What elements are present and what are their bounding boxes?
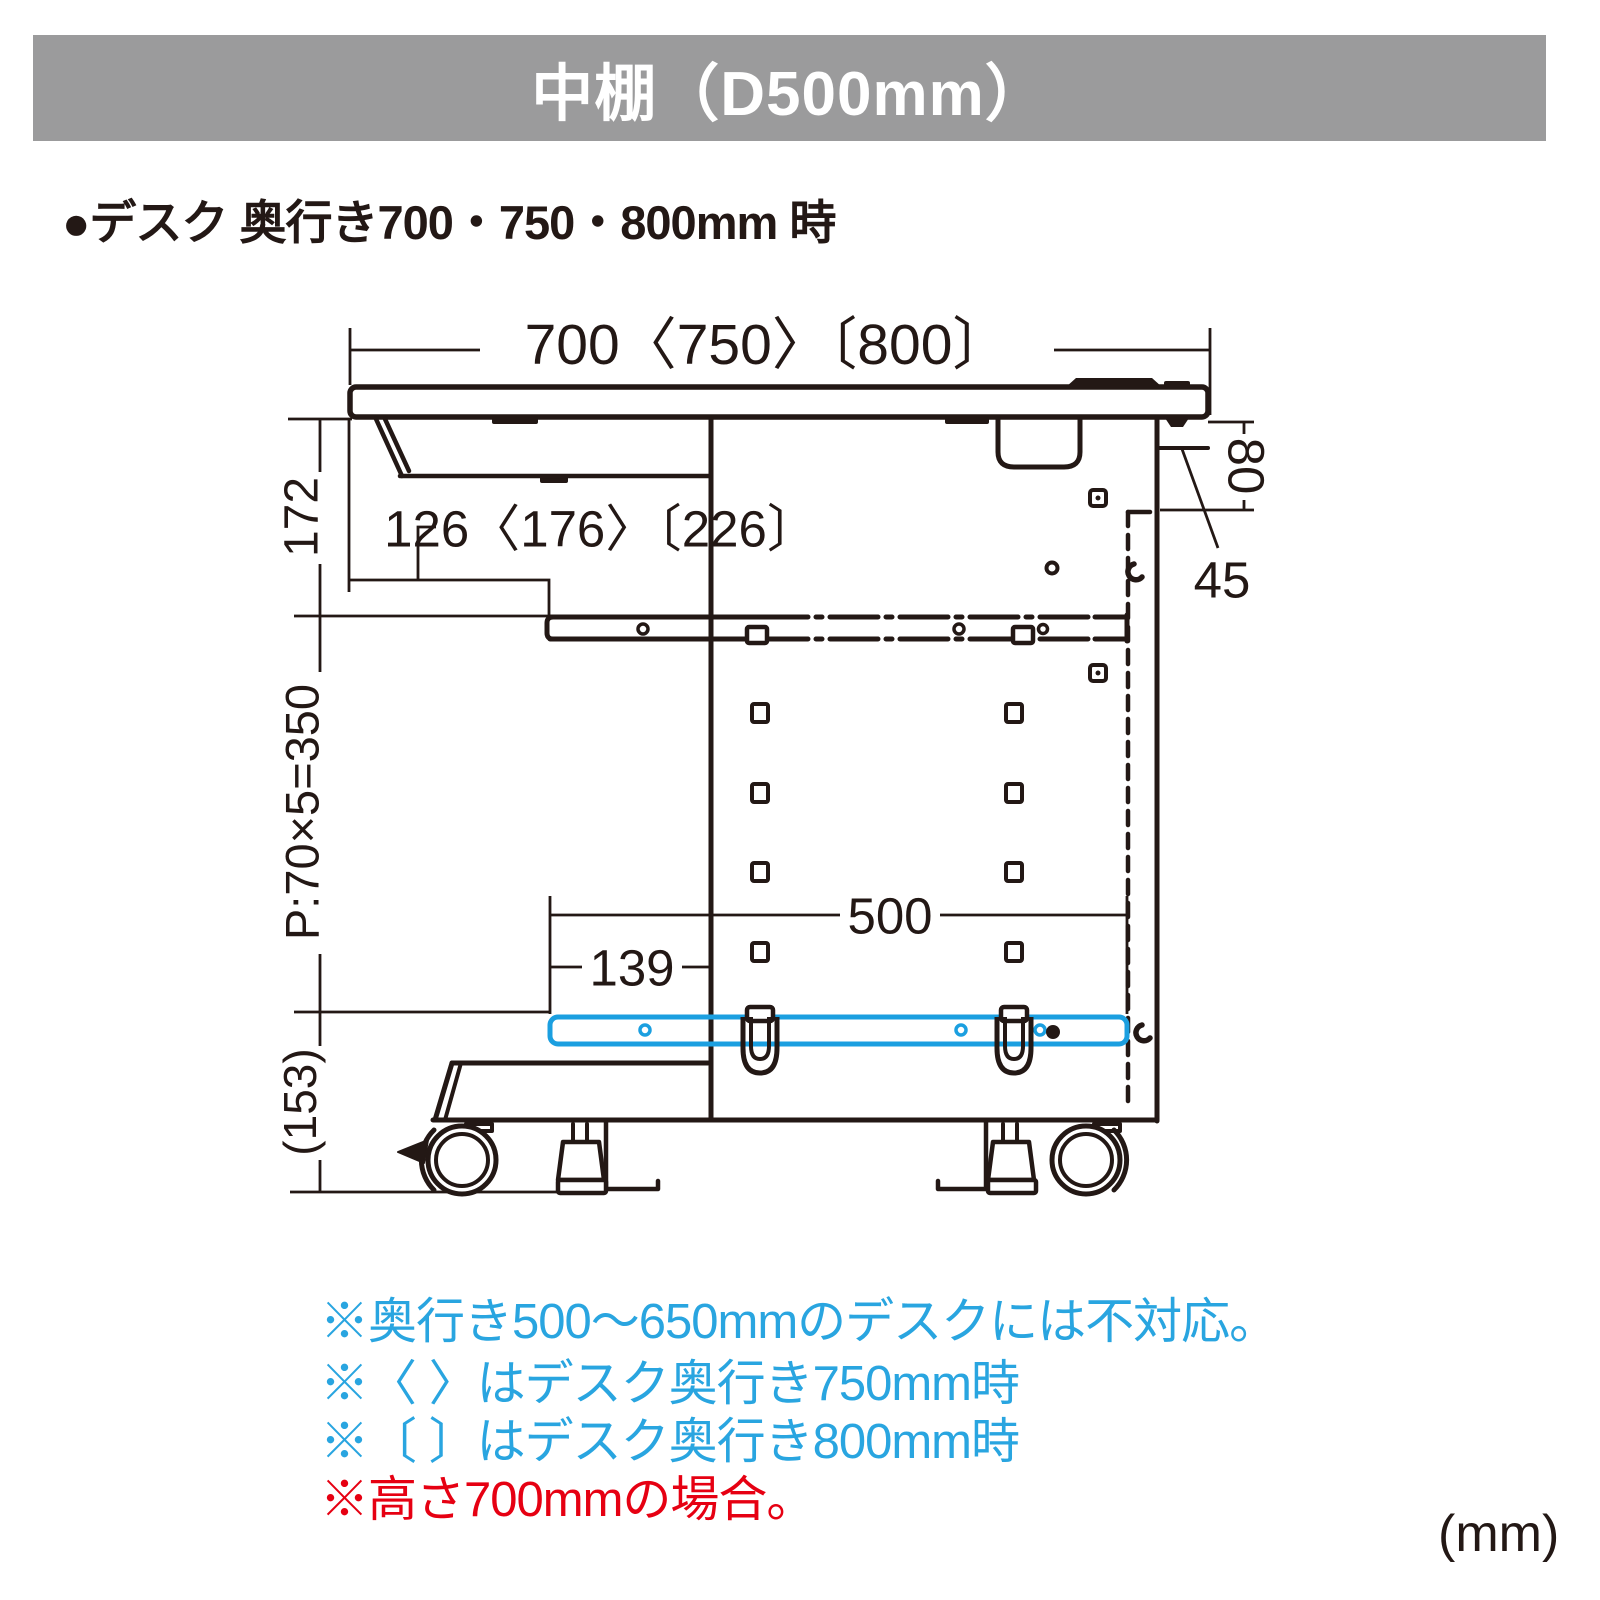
right-caster bbox=[1052, 1124, 1127, 1194]
dim-lowest-to-floor: (153) bbox=[274, 1048, 326, 1155]
right-adjuster bbox=[938, 1122, 1036, 1193]
left-adjuster bbox=[558, 1122, 658, 1193]
break-mark bbox=[1128, 564, 1142, 580]
hidden-line bbox=[1128, 512, 1150, 1104]
shelf-bolt bbox=[1046, 1025, 1060, 1039]
bolt-marks bbox=[1047, 490, 1107, 681]
left-foot bbox=[435, 1063, 708, 1120]
note-incompatible-depth: ※奥行き500〜650mmのデスクには不対応。 bbox=[320, 1282, 1277, 1353]
under-desk-tray bbox=[376, 419, 711, 476]
dim-hole-pitch: P:70×5=350 bbox=[276, 684, 329, 940]
dim-rear-edge-offset: 45 bbox=[1194, 552, 1251, 609]
break-mark bbox=[1136, 1025, 1150, 1041]
dim-top-to-rail: 172 bbox=[276, 477, 329, 557]
unit-label: (mm) bbox=[1438, 1504, 1559, 1564]
dimension-labels: 700〈750〉〔800〕 126〈176〉〔226〕 172 P:70×5=3… bbox=[274, 312, 1275, 1160]
dim-shelf-depth: 500 bbox=[847, 888, 932, 945]
note-height-case: ※高さ700mmの場合。 bbox=[320, 1460, 814, 1531]
desk-top bbox=[350, 387, 1208, 417]
dim-desk-depth: 700〈750〉〔800〕 bbox=[525, 313, 1010, 377]
left-caster bbox=[398, 1124, 496, 1194]
dim-shelf-front-offset: 139 bbox=[589, 940, 674, 997]
caster-brake bbox=[398, 1140, 428, 1163]
dim-rear-gap: 126〈176〉〔226〕 bbox=[384, 501, 818, 558]
dim-bracket-height: 80 bbox=[1218, 438, 1275, 495]
dimension-lines bbox=[288, 328, 1254, 1192]
rear-bracket bbox=[998, 417, 1080, 467]
